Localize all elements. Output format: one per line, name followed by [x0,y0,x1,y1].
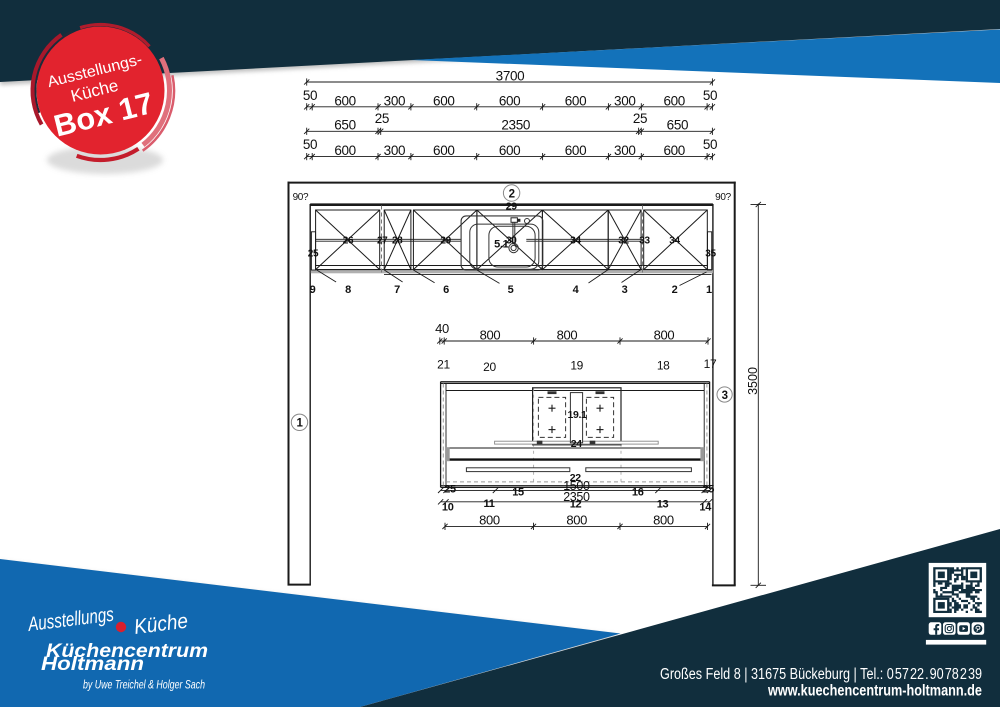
svg-text:19.1: 19.1 [567,409,587,421]
svg-text:16: 16 [632,487,644,499]
svg-text:800: 800 [480,327,501,342]
svg-text:30: 30 [506,235,517,246]
svg-text:29: 29 [440,236,451,247]
svg-text:34: 34 [669,236,680,247]
svg-text:34: 34 [570,236,581,247]
svg-text:800: 800 [653,512,674,527]
svg-text:www.kuechencentrum-holtmann.de: www.kuechencentrum-holtmann.de [767,683,982,700]
svg-text:25: 25 [308,249,319,260]
svg-text:28: 28 [392,236,403,247]
svg-text:14: 14 [699,502,712,514]
svg-text:25: 25 [703,483,715,495]
svg-text:800: 800 [566,512,587,527]
svg-text:50: 50 [303,88,317,103]
svg-text:800: 800 [479,512,500,527]
svg-text:32: 32 [618,236,629,247]
svg-text:600: 600 [565,143,586,158]
svg-text:2: 2 [672,284,678,296]
svg-text:21: 21 [437,357,450,371]
svg-text:35: 35 [705,249,716,260]
svg-text:33: 33 [639,236,650,247]
svg-text:40: 40 [435,321,449,336]
svg-text:90?: 90? [293,192,309,203]
svg-text:600: 600 [433,93,454,108]
svg-text:25: 25 [375,111,389,126]
svg-text:300: 300 [614,143,635,158]
svg-text:Großes Feld 8 | 31675 Bückebur: Großes Feld 8 | 31675 Bückeburg | Tel.: … [660,666,982,683]
svg-text:18: 18 [657,358,670,372]
svg-text:600: 600 [663,143,684,158]
svg-text:2: 2 [509,188,515,200]
svg-text:600: 600 [433,143,454,158]
svg-text:12: 12 [570,499,582,511]
svg-text:by Uwe Treichel & Holger Sach: by Uwe Treichel & Holger Sach [83,678,205,692]
svg-text:25: 25 [633,111,647,126]
svg-text:3: 3 [722,390,728,402]
svg-text:25: 25 [444,483,456,495]
svg-text:300: 300 [614,93,635,108]
svg-text:600: 600 [663,93,684,108]
svg-text:26: 26 [343,236,354,247]
svg-text:800: 800 [557,327,578,342]
svg-text:50: 50 [703,88,717,103]
svg-text:600: 600 [499,143,520,158]
svg-text:600: 600 [499,93,520,108]
svg-text:29: 29 [506,200,517,212]
svg-text:1: 1 [706,284,712,296]
svg-text:17: 17 [704,357,717,371]
svg-text:8: 8 [345,284,351,296]
svg-text:20: 20 [483,360,496,374]
svg-text:11: 11 [484,498,495,510]
svg-text:10: 10 [442,502,454,514]
svg-text:3: 3 [622,284,628,296]
svg-text:7: 7 [394,284,400,296]
svg-text:13: 13 [657,499,669,511]
svg-text:27: 27 [377,236,388,247]
svg-text:6: 6 [443,284,449,296]
svg-text:19: 19 [570,358,583,372]
svg-text:650: 650 [667,117,688,132]
svg-text:Holtmann: Holtmann [41,653,144,675]
svg-text:90?: 90? [715,192,731,203]
svg-text:300: 300 [384,143,405,158]
svg-text:3500: 3500 [746,367,760,395]
svg-text:600: 600 [565,93,586,108]
svg-text:3700: 3700 [496,69,525,84]
svg-text:600: 600 [334,143,355,158]
svg-text:600: 600 [334,93,355,108]
svg-text:2350: 2350 [501,117,530,132]
svg-text:50: 50 [703,137,717,152]
svg-text:15: 15 [512,487,524,499]
svg-text:300: 300 [384,93,405,108]
svg-text:5: 5 [508,284,514,296]
svg-text:1: 1 [296,418,303,430]
svg-text:50: 50 [303,137,317,152]
svg-text:9: 9 [310,284,316,296]
svg-text:650: 650 [334,117,355,132]
svg-text:800: 800 [654,327,675,342]
